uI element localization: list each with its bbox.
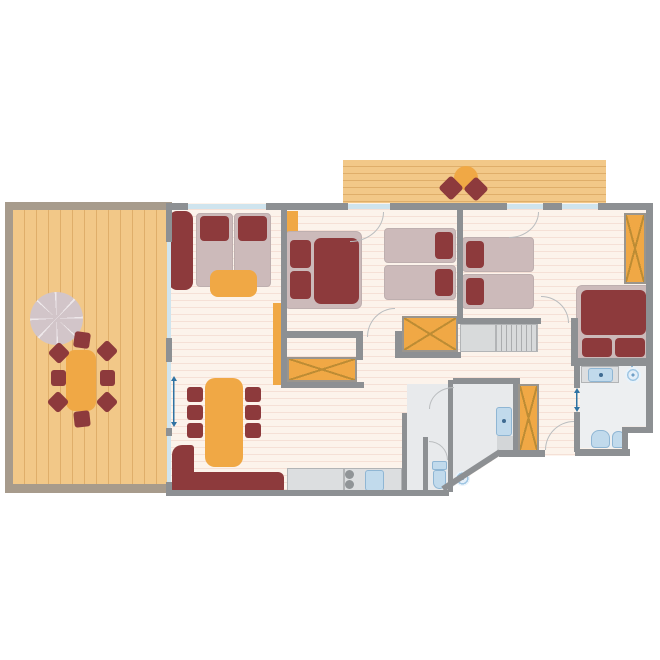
wall-wc-west xyxy=(423,437,428,492)
wc-toilet-tank xyxy=(432,461,447,470)
bathroom-right-sink-faucet xyxy=(599,373,603,377)
bathroom-right-shower-head xyxy=(625,367,641,383)
sliding-door-arrow-bathroom xyxy=(573,388,580,412)
wall-bathroom-mid-east xyxy=(513,384,518,452)
wall-north-3 xyxy=(390,203,507,210)
wall-bathroom-right-west-2 xyxy=(574,412,580,452)
kitchen-sink-basin-2 xyxy=(345,480,354,489)
wall-closet-top xyxy=(283,331,363,338)
terrace-rail-left xyxy=(5,202,13,493)
dining-chair-l1 xyxy=(187,387,203,402)
wall-vestibule-west xyxy=(402,413,407,492)
living-sideboard xyxy=(273,303,281,385)
terrace-chair-bottom xyxy=(73,410,91,428)
wall-closet-bottom xyxy=(281,382,364,388)
wardrobe-bedroom-b xyxy=(624,213,646,284)
wall-living-east xyxy=(281,206,287,388)
bedroom-b-duvet xyxy=(581,290,646,335)
bedroom-a-twin-pillow-1 xyxy=(435,232,453,259)
wardrobe-bedroom-a xyxy=(402,316,458,352)
wall-bathroom-right-west-1 xyxy=(574,366,580,388)
terrace-chair-top xyxy=(73,331,91,349)
dining-chair-l3 xyxy=(187,423,203,438)
dining-bench-horizontal xyxy=(172,472,284,492)
window-bedroom-b xyxy=(562,204,598,209)
stairs-landing xyxy=(460,324,496,352)
dining-table xyxy=(205,378,243,467)
terrace-rail-top xyxy=(5,202,172,210)
wall-bedroom-b-south xyxy=(457,318,541,324)
terrace-rail-bottom xyxy=(5,484,172,493)
dining-chair-r3 xyxy=(245,423,261,438)
glass-west-1 xyxy=(167,242,171,338)
bathroom-right-toilet xyxy=(591,430,610,448)
wall-bedroom-a-south xyxy=(397,352,461,358)
wall-west-top xyxy=(166,203,172,242)
wardrobe-bathroom xyxy=(518,384,539,452)
bedroom-b-pillow-2 xyxy=(615,338,645,357)
terrace-chair-l2 xyxy=(51,370,66,386)
wall-bathroom-mid-north xyxy=(453,378,520,384)
terrace-chair-r2 xyxy=(100,370,115,386)
wall-bathroom-right-north xyxy=(571,358,653,366)
wall-north-4 xyxy=(543,203,562,210)
sofa-chaise xyxy=(169,211,193,290)
wall-north-5 xyxy=(598,203,653,210)
dining-chair-l2 xyxy=(187,405,203,420)
terrace-deck xyxy=(13,210,167,484)
bedroom-b-pillow-1 xyxy=(582,338,612,357)
wall-west-mid xyxy=(166,338,172,362)
window-balcony-door-a xyxy=(348,204,390,209)
wall-east xyxy=(646,203,653,433)
wall-west-low xyxy=(166,428,172,436)
window-living xyxy=(188,204,266,209)
sofa-cushion-left xyxy=(200,216,229,241)
bedroom-b-twin-pillow-2 xyxy=(466,278,484,305)
bedroom-a-pillow-1 xyxy=(290,240,311,268)
wall-closet-stub xyxy=(356,338,363,360)
kitchen-stove xyxy=(365,470,384,491)
wall-south-entry-left xyxy=(499,450,545,457)
window-balcony-door-b xyxy=(507,204,543,209)
bathroom-mid-sink-faucet xyxy=(502,419,506,423)
wall-bedrooms-divider xyxy=(457,206,463,324)
terrace-table xyxy=(66,350,96,411)
sliding-door-arrow-terrace xyxy=(170,376,177,427)
bedroom-a-duvet xyxy=(314,238,359,304)
glass-west-2 xyxy=(167,436,171,482)
bedroom-a-twin-pillow-2 xyxy=(435,269,453,296)
kitchen-sink-basin-1 xyxy=(345,470,354,479)
dining-chair-r2 xyxy=(245,405,261,420)
bedroom-b-twin-pillow-1 xyxy=(466,241,484,268)
coffee-table xyxy=(210,270,257,297)
wall-north-2 xyxy=(266,203,348,210)
dining-chair-r1 xyxy=(245,387,261,402)
wardrobe-hallway xyxy=(287,357,357,382)
stairs-treads xyxy=(496,324,538,352)
bedroom-a-pillow-2 xyxy=(290,271,311,299)
sofa-cushion-right xyxy=(238,216,267,241)
floor-plan-canvas xyxy=(0,0,660,660)
